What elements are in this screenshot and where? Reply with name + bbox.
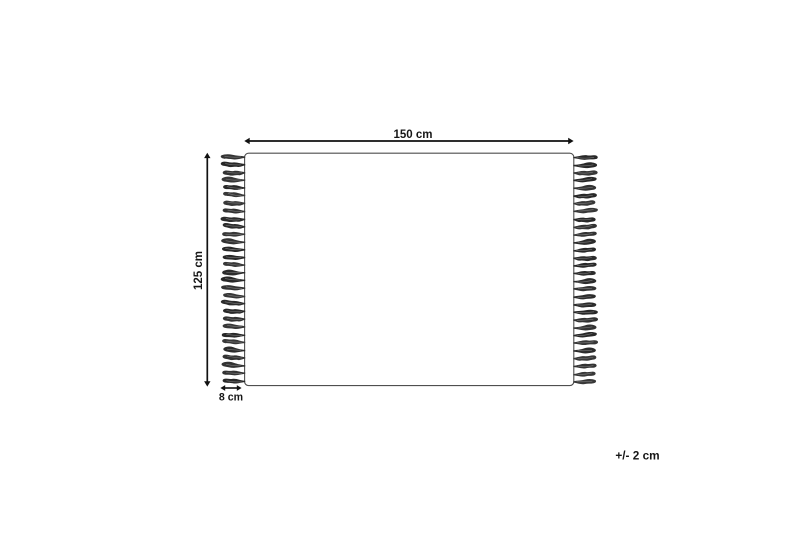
svg-text:125 cm: 125 cm: [193, 251, 205, 290]
svg-text:8 cm: 8 cm: [219, 392, 243, 404]
svg-text:+/- 2 cm: +/- 2 cm: [615, 449, 659, 463]
svg-text:150 cm: 150 cm: [393, 129, 432, 141]
